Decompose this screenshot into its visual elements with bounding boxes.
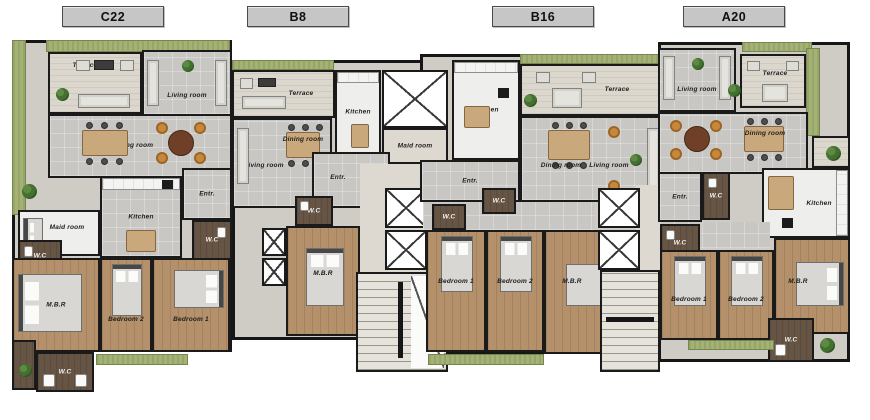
room-b8-wc: W.C: [295, 196, 333, 226]
dining-table: [548, 130, 590, 160]
staircase: [600, 270, 660, 372]
plant-icon: [630, 154, 642, 166]
chair-icon: [288, 124, 295, 131]
armchair: [747, 61, 760, 71]
elevator-shaft: [598, 188, 640, 228]
chair-icon: [670, 148, 682, 160]
room-c22-bedroom2: Bedroom 2: [100, 258, 152, 352]
toilet: [24, 246, 33, 257]
room-b16-terrace: Terrace: [520, 64, 662, 116]
stove: [782, 218, 793, 228]
chair-icon: [608, 126, 620, 138]
room-a20-terrace: Terrace: [740, 54, 806, 108]
chair-icon: [116, 158, 123, 165]
c22-grass-bottom: [96, 354, 188, 365]
stove: [498, 88, 509, 98]
service-shaft: [262, 258, 286, 286]
armchair: [120, 60, 134, 71]
chair-icon: [316, 124, 323, 131]
chair-icon: [775, 154, 782, 161]
chair-icon: [194, 122, 206, 134]
toilet: [217, 227, 226, 238]
unit-tag-b16[interactable]: B16: [492, 6, 594, 27]
bed: [500, 236, 532, 292]
chair-icon: [580, 122, 587, 129]
dining-table: [744, 126, 784, 152]
unit-tag-c22[interactable]: C22: [62, 6, 164, 27]
plant-icon: [524, 94, 537, 107]
room-a20-living: Living room: [658, 48, 736, 112]
plant-icon: [820, 338, 835, 353]
room-a20-entrance: Entr.: [658, 172, 702, 222]
round-table: [684, 126, 710, 152]
room-b8-terrace: Terrace: [232, 70, 335, 118]
plant-icon: [19, 364, 32, 377]
room-c22-bedroom1: Bedroom 1: [152, 258, 230, 352]
armchair: [536, 72, 550, 83]
room-b8-maid: Maid room: [382, 128, 448, 164]
bed: [441, 236, 473, 292]
room-a20-wc-mbr: W.C: [768, 318, 814, 362]
stair-rail: [398, 282, 403, 359]
room-c22-mbr: M.B.R: [12, 258, 100, 352]
armchair: [786, 61, 799, 71]
chair-icon: [552, 162, 559, 169]
chair-icon: [747, 154, 754, 161]
floor-plan: C22 B8 B16 A20 Terrace Living room Dinin…: [0, 0, 870, 420]
coffee-table: [94, 60, 114, 70]
kitchen-counter: [836, 170, 848, 236]
coffee-table: [258, 78, 276, 87]
toilet: [666, 230, 675, 240]
c22-balcony: [12, 340, 36, 390]
stove: [162, 180, 173, 189]
toilet: [300, 201, 309, 211]
chair-icon: [710, 148, 722, 160]
kitchen-table: [126, 230, 156, 252]
a20-landscape-right: [806, 48, 820, 136]
a20-grass-bottom: [688, 340, 774, 350]
kitchen-counter: [337, 72, 379, 83]
b16-landscape-top: [520, 54, 666, 64]
b8-landscape-top: [232, 60, 334, 70]
a20-landscape-top: [742, 42, 812, 52]
room-b16-kitchen: Kitchen: [452, 60, 520, 160]
elevator-shaft: [382, 70, 448, 128]
chair-icon: [156, 122, 168, 134]
sofa: [237, 128, 249, 184]
stair-rail: [606, 317, 653, 322]
round-table: [168, 130, 194, 156]
chair-icon: [580, 162, 587, 169]
plant-icon: [728, 84, 741, 97]
chair-icon: [761, 118, 768, 125]
room-b8-kitchen: Kitchen: [335, 70, 381, 154]
elevator-shaft: [385, 230, 427, 270]
room-a20-bedroom2: Bedroom 2: [718, 250, 774, 340]
room-c22-wc-bottom: W.C: [36, 352, 94, 392]
plant-icon: [692, 58, 704, 70]
armchair: [76, 60, 90, 71]
sofa: [552, 88, 582, 108]
bed: [731, 256, 763, 306]
unit-tag-b8[interactable]: B8: [247, 6, 349, 27]
b16-grass-bottom: [428, 354, 544, 365]
toilet: [43, 374, 55, 387]
kitchen-counter: [454, 62, 518, 73]
plant-icon: [826, 146, 841, 161]
chair-icon: [86, 122, 93, 129]
room-c22-living: Living room: [142, 50, 232, 116]
chair-icon: [670, 120, 682, 132]
room-a20-kitchen: Kitchen: [762, 168, 850, 238]
unit-tag-a20[interactable]: A20: [683, 6, 785, 27]
bed: [112, 264, 142, 316]
elevator-shaft: [598, 230, 640, 270]
chair-icon: [566, 162, 573, 169]
room-c22-wc-entr: W.C: [192, 220, 232, 260]
sofa: [762, 84, 788, 102]
chair-icon: [302, 124, 309, 131]
plant-icon: [56, 88, 69, 101]
chair-icon: [552, 122, 559, 129]
chair-icon: [101, 158, 108, 165]
sofa: [78, 94, 130, 108]
plant-icon: [182, 60, 194, 72]
bed: [796, 262, 844, 306]
chair-icon: [194, 152, 206, 164]
service-shaft: [262, 228, 286, 256]
chair-icon: [156, 152, 168, 164]
room-b16-wc1: W.C: [432, 204, 466, 230]
room-b16-bedroom2: Bedroom 2: [486, 230, 544, 352]
room-c22-terrace: Terrace: [48, 52, 142, 114]
armchair: [582, 72, 596, 83]
room-a20-dining: Dining room: [658, 112, 808, 174]
bed: [18, 274, 82, 332]
chair-icon: [101, 122, 108, 129]
chair-icon: [775, 118, 782, 125]
kitchen-table: [351, 124, 369, 148]
room-b16-bedroom1: Bedroom 1: [426, 230, 486, 352]
kitchen-table: [464, 106, 490, 128]
chair-icon: [302, 160, 309, 167]
sofa: [215, 60, 227, 106]
bed: [674, 256, 706, 306]
chair-icon: [761, 154, 768, 161]
toilet: [708, 178, 717, 188]
room-c22-kitchen: Kitchen: [100, 176, 182, 258]
armchair: [240, 78, 253, 89]
a20-plant-nook: [812, 136, 850, 168]
kitchen-table: [768, 176, 794, 210]
room-a20-bedroom1: Bedroom 1: [660, 250, 718, 340]
sink: [75, 374, 87, 387]
chair-icon: [747, 118, 754, 125]
chair-icon: [566, 122, 573, 129]
chair-icon: [116, 122, 123, 129]
toilet: [775, 344, 786, 356]
plant-icon: [22, 184, 37, 199]
bed: [306, 248, 344, 306]
room-a20-wc-entr: W.C: [702, 172, 730, 220]
chair-icon: [710, 120, 722, 132]
sofa: [147, 60, 159, 106]
chair-icon: [288, 160, 295, 167]
sofa: [242, 96, 286, 109]
room-c22-entrance: Entr.: [182, 168, 232, 220]
dining-table: [82, 130, 128, 156]
sofa: [663, 56, 675, 100]
room-b16-wc2: W.C: [482, 188, 516, 214]
chair-icon: [86, 158, 93, 165]
bed: [174, 270, 224, 308]
room-b8-mbr: M.B.R: [286, 226, 360, 336]
